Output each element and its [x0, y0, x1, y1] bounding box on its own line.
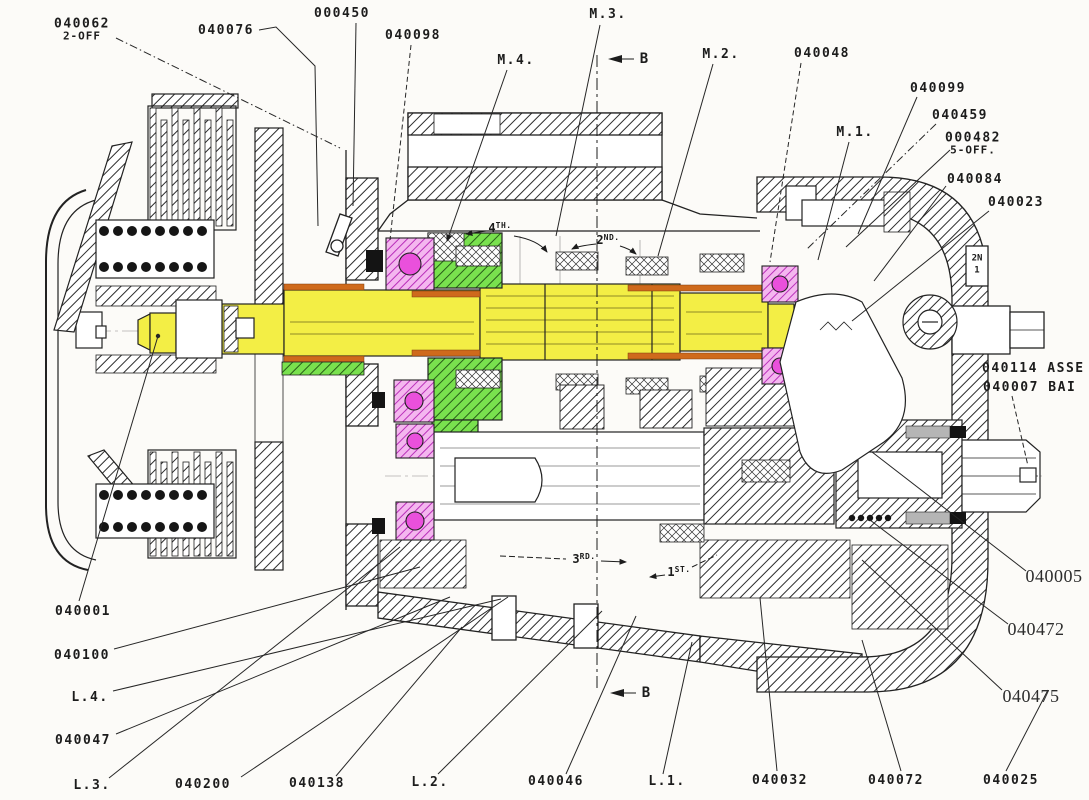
drawing-canvas: 0400622-OFF040076000450040098M.4.M.3.M.2…: [0, 0, 1089, 800]
kickstart-gear-green: [282, 362, 364, 375]
mainshaft-yellow: [138, 284, 836, 360]
gearbox-section-drawing: [0, 0, 1089, 800]
